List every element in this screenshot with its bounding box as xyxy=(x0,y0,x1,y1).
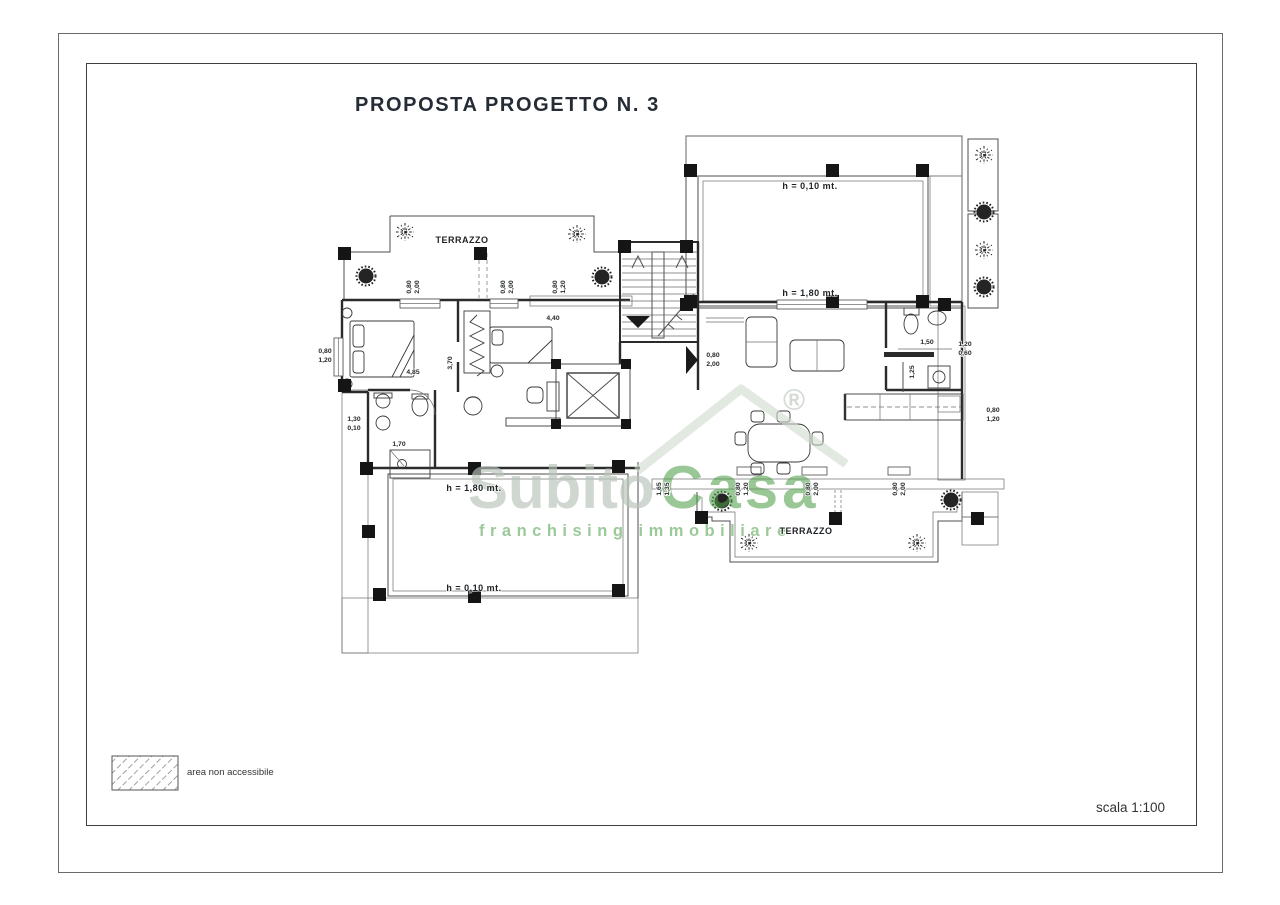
dimension-label: 0,80 xyxy=(892,482,899,495)
dimension-label: 2,00 xyxy=(813,482,820,495)
staircase xyxy=(622,252,698,374)
dimension-label: 1,20 xyxy=(958,341,971,348)
plan-area-label: TERRAZZO xyxy=(436,235,489,245)
dimension-label: 1,30 xyxy=(347,416,360,423)
chair xyxy=(751,411,764,422)
dimension-label: 0,80 xyxy=(318,348,331,355)
watermark-tagline: franchising immobiliare xyxy=(479,522,792,540)
dimension-label: 4,40 xyxy=(546,315,559,322)
planter-box xyxy=(968,139,998,211)
dimension-label: 4,85 xyxy=(406,369,419,376)
dimension-label: 3,70 xyxy=(447,356,454,369)
dimension-label: 2,00 xyxy=(508,280,515,293)
drawing-sheet: PROPOSTA PROGETTO N. 3 xyxy=(0,0,1280,905)
dimension-label: 0,80 xyxy=(805,482,812,495)
registered-mark: ® xyxy=(783,384,805,417)
dimension-label: 0,80 xyxy=(552,280,559,293)
dimension-label: 1,70 xyxy=(392,441,405,448)
plan-area-label: TERRAZZO xyxy=(780,526,833,536)
legend-label: area non accessibile xyxy=(187,767,274,778)
sink xyxy=(376,416,390,430)
dimension-label: 1,20 xyxy=(318,357,331,364)
dimension-label: 1,20 xyxy=(986,416,999,423)
plan-area-label: h = 0,10 mt. xyxy=(446,583,501,593)
plan-area-label: h = 1,80 mt. xyxy=(782,288,837,298)
sink xyxy=(928,311,946,325)
dimension-label: 0,80 xyxy=(735,482,742,495)
watermark: ® Subito Casa franchising immobiliare xyxy=(468,384,846,540)
dimension-label: 1,20 xyxy=(560,280,567,293)
dimension-label: 0,80 xyxy=(406,280,413,293)
legend-hatch-swatch xyxy=(112,756,178,790)
plan-area-label: h = 0,10 mt. xyxy=(782,181,837,191)
door-leaf xyxy=(686,346,698,374)
chair xyxy=(735,432,746,445)
desk-chair xyxy=(527,387,543,403)
wardrobe xyxy=(464,311,490,373)
furniture xyxy=(342,308,560,478)
dimension-label: 1,50 xyxy=(920,339,933,346)
shaft xyxy=(556,364,630,426)
non-accessible-area xyxy=(703,181,923,301)
non-accessible-area-frame xyxy=(698,176,928,306)
dimension-label: 0,80 xyxy=(706,352,719,359)
dimension-label: 0,60 xyxy=(958,350,971,357)
dimension-label: 1,35 xyxy=(664,482,671,495)
toilet xyxy=(904,314,918,334)
interior-wall-stub xyxy=(884,352,934,357)
dimension-label: 2,00 xyxy=(900,482,907,495)
desk xyxy=(547,382,559,411)
dimension-label: 1,20 xyxy=(743,482,750,495)
dimension-label: 0,10 xyxy=(347,425,360,432)
dimension-label: 1,25 xyxy=(909,365,916,378)
dimension-label: 0,80 xyxy=(500,280,507,293)
kitchen-sink xyxy=(938,396,960,412)
washing-machine xyxy=(928,366,950,388)
dimension-label: 0,80 xyxy=(986,407,999,414)
dimension-label: 1,65 xyxy=(656,482,663,495)
plan-area-label: h = 1,80 mt. xyxy=(446,483,501,493)
scale-label: scala 1:100 xyxy=(1096,800,1165,815)
sink xyxy=(376,394,390,408)
dimension-label: 2,00 xyxy=(414,280,421,293)
dimension-label: 2,00 xyxy=(706,361,719,368)
